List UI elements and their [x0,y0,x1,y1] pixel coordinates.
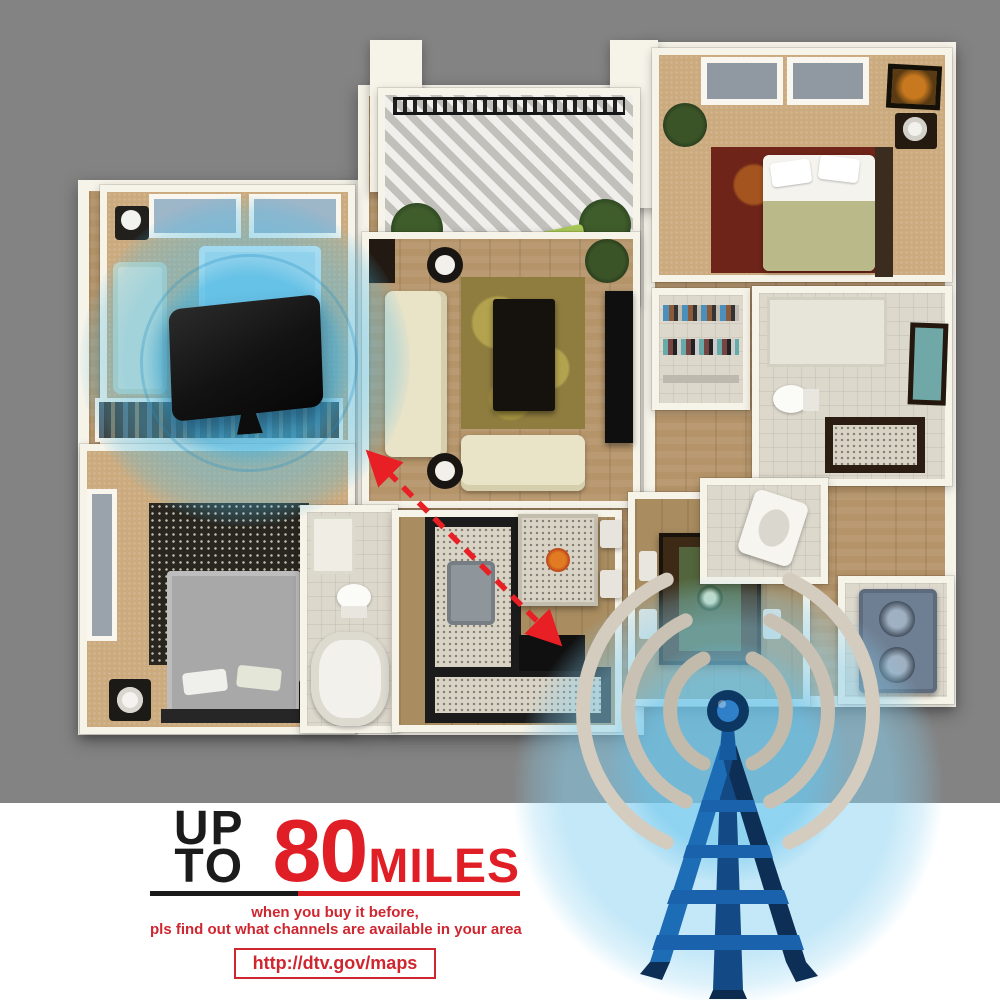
closet-clothes-row-a [663,305,739,321]
pillow-b [236,665,282,691]
toilet-tank [341,606,367,618]
balcony-railing [393,97,625,115]
closet-clothes-row-b [663,339,739,355]
bed-footboard [161,709,307,723]
mirror [908,322,949,405]
closet-shelf [663,375,739,383]
kitchen-counter-horizontal [425,667,611,723]
living-room [362,232,640,508]
shower-area [767,297,887,367]
sofa-loveseat [461,435,585,491]
dining-chair-l1 [639,551,657,581]
bookcase [369,239,395,283]
flat-indoor-tv-antenna-icon [168,294,323,422]
headline-range-unit: MILES [368,848,520,886]
water-heater [311,516,355,574]
dining-centerpiece [697,585,723,611]
lamp-round [121,210,141,230]
advertisement-image: UP TO 80 MILES when you buy it before, p… [0,0,1000,1000]
laundry-room [838,576,954,704]
closet-hall [652,288,750,410]
master-window-a [701,57,783,105]
dining-chair-l2 [639,609,657,639]
note-line-2: pls find out what channels are available… [150,921,520,938]
window-left-wall [87,489,117,641]
chair-a [600,520,622,548]
headline-up-to: UP TO [150,810,268,887]
tv-console [605,291,633,443]
window-top-left-a [149,194,241,238]
promo-text-block: UP TO 80 MILES when you buy it before, p… [150,810,520,979]
master-lamp [903,117,927,141]
kitchen-island-dark [519,635,585,671]
lamp-left [117,687,143,713]
headline: UP TO 80 MILES [150,810,520,887]
room-master-bedroom [652,48,952,282]
bed-gray [167,571,301,723]
master-plant [663,103,707,147]
vanity [825,417,925,473]
window-top-left-b [249,194,341,238]
coffee-table [493,299,555,411]
dining-chair-r2 [763,609,781,639]
washer-door [879,601,915,637]
bathtub [311,632,389,726]
wall-art [886,64,942,111]
note-line-1: when you buy it before, [150,904,520,921]
bathroom-right [752,286,952,486]
centerpiece-bowl [546,548,570,572]
breakfast-table-group [518,514,598,606]
side-lamp-top [435,255,455,275]
sofa-olive [113,262,167,394]
sofa-main [385,291,447,457]
toilet-right-tank [803,389,819,411]
bathroom-center [300,505,398,733]
stove [447,561,495,625]
toilet-room [700,478,828,584]
master-blanket [763,201,875,271]
headline-range-value: 80 [272,816,366,886]
master-window-b [787,57,869,105]
chair-b [600,570,622,598]
side-lamp-bottom [435,461,455,481]
headboard [875,147,893,277]
master-pillow-b [818,155,861,184]
dryer-door [879,647,915,683]
map-url-box: http://dtv.gov/maps [234,948,437,979]
plant-living [585,239,629,283]
